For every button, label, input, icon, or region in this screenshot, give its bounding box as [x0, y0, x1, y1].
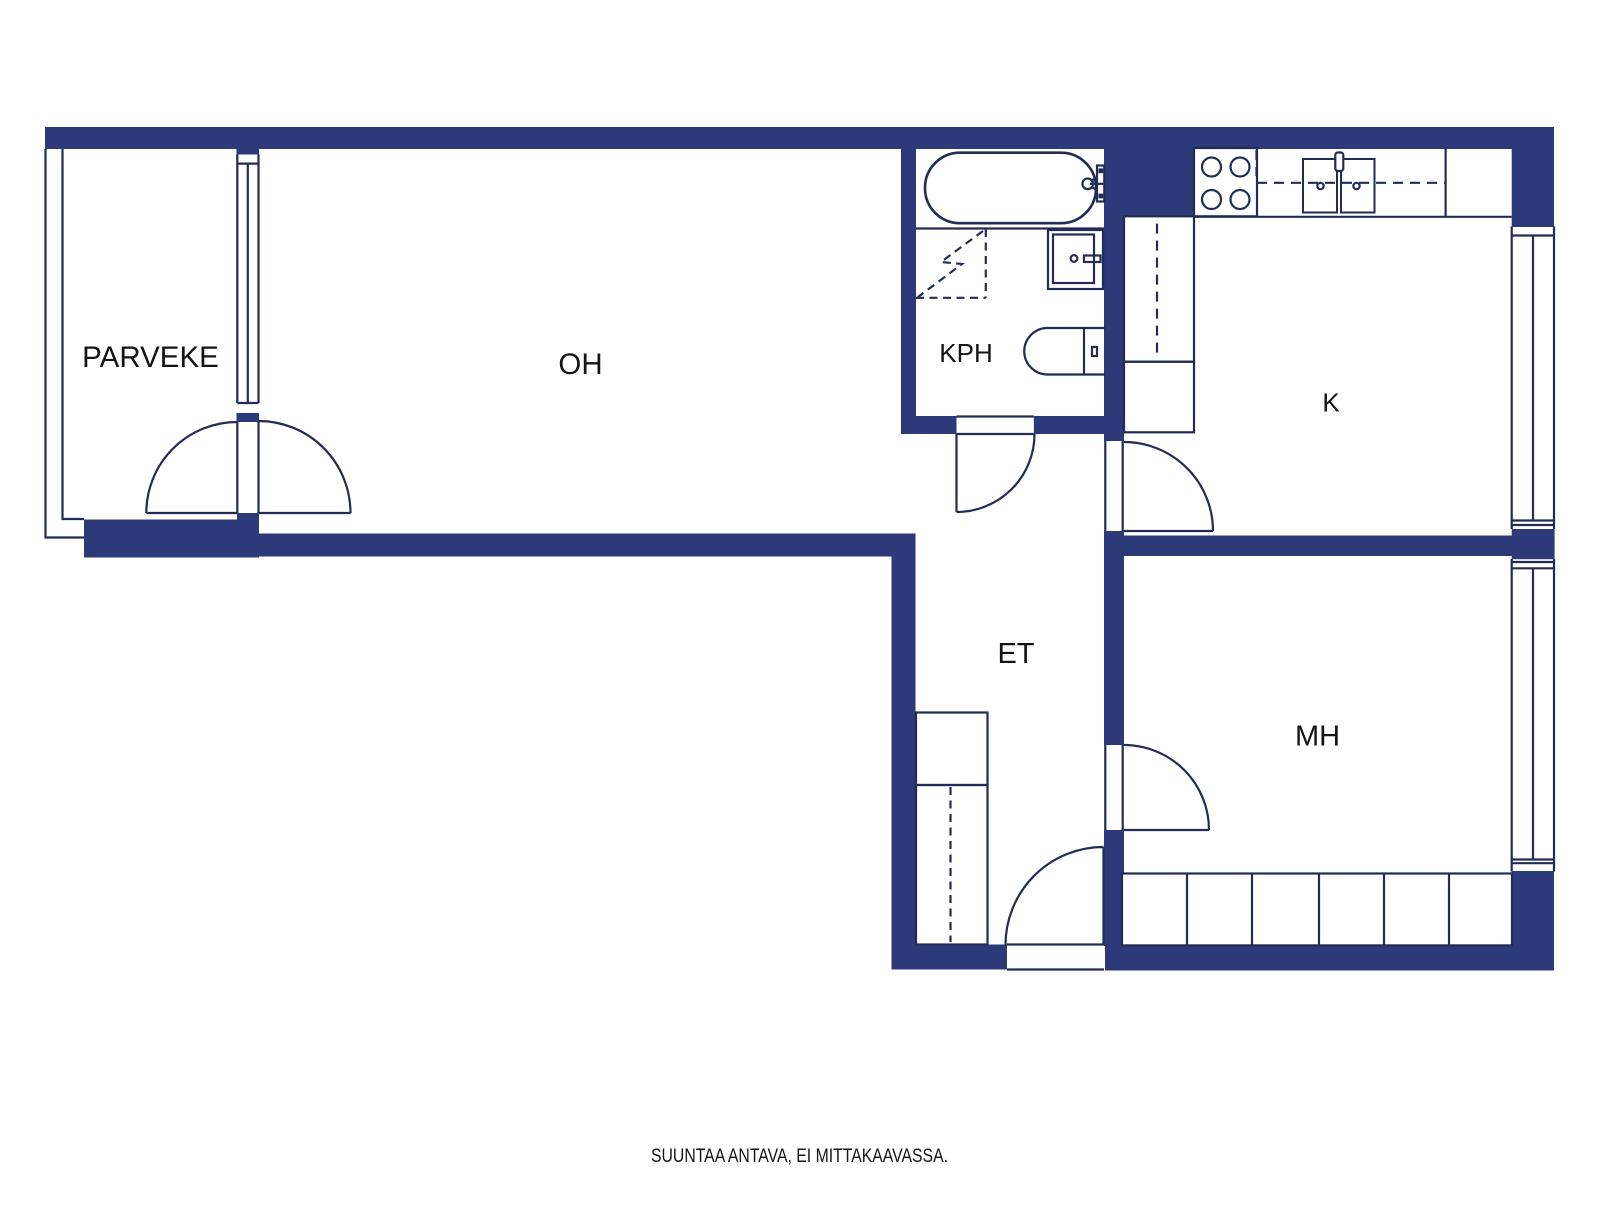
svg-text:MH: MH [1295, 720, 1340, 752]
svg-text:ET: ET [997, 638, 1034, 670]
svg-text:K: K [1322, 387, 1340, 417]
svg-text:PARVEKE: PARVEKE [82, 341, 219, 374]
svg-text:SUUNTAA ANTAVA, EI MITTAKAAVAS: SUUNTAA ANTAVA, EI MITTAKAAVASSA. [651, 1146, 948, 1167]
svg-text:OH: OH [558, 348, 602, 381]
svg-text:KPH: KPH [939, 338, 992, 368]
